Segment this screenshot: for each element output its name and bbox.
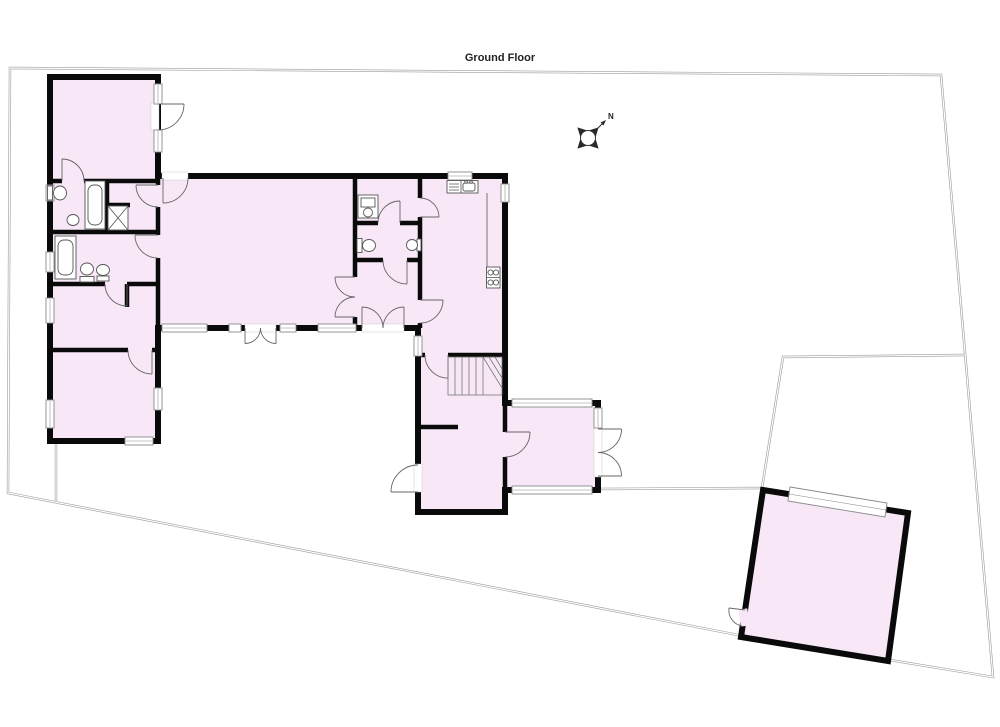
sink-fixture (97, 265, 110, 282)
floorplan-page: Ground Floor (0, 0, 1000, 727)
kitchen-sink-fixture (447, 181, 478, 194)
utility-appliance (358, 195, 378, 218)
compass-icon: N (574, 112, 614, 152)
hob-fixture (487, 267, 501, 288)
house-footprint (50, 77, 598, 512)
toilet-fixture (48, 186, 67, 200)
floor-title: Ground Floor (465, 52, 536, 64)
garage (729, 487, 908, 661)
main-house (46, 77, 622, 512)
toilet-fixture (80, 263, 94, 282)
sink-fixture (407, 239, 422, 251)
north-label: N (608, 112, 614, 121)
floorplan-canvas: Ground Floor (0, 0, 1000, 727)
sink-fixture (67, 215, 79, 226)
inner-plot-boundary (598, 355, 965, 489)
toilet-fixture (357, 239, 376, 253)
bathtub-fixture (85, 181, 105, 229)
bathtub-fixture (55, 236, 76, 279)
shower-fixture (108, 206, 128, 230)
